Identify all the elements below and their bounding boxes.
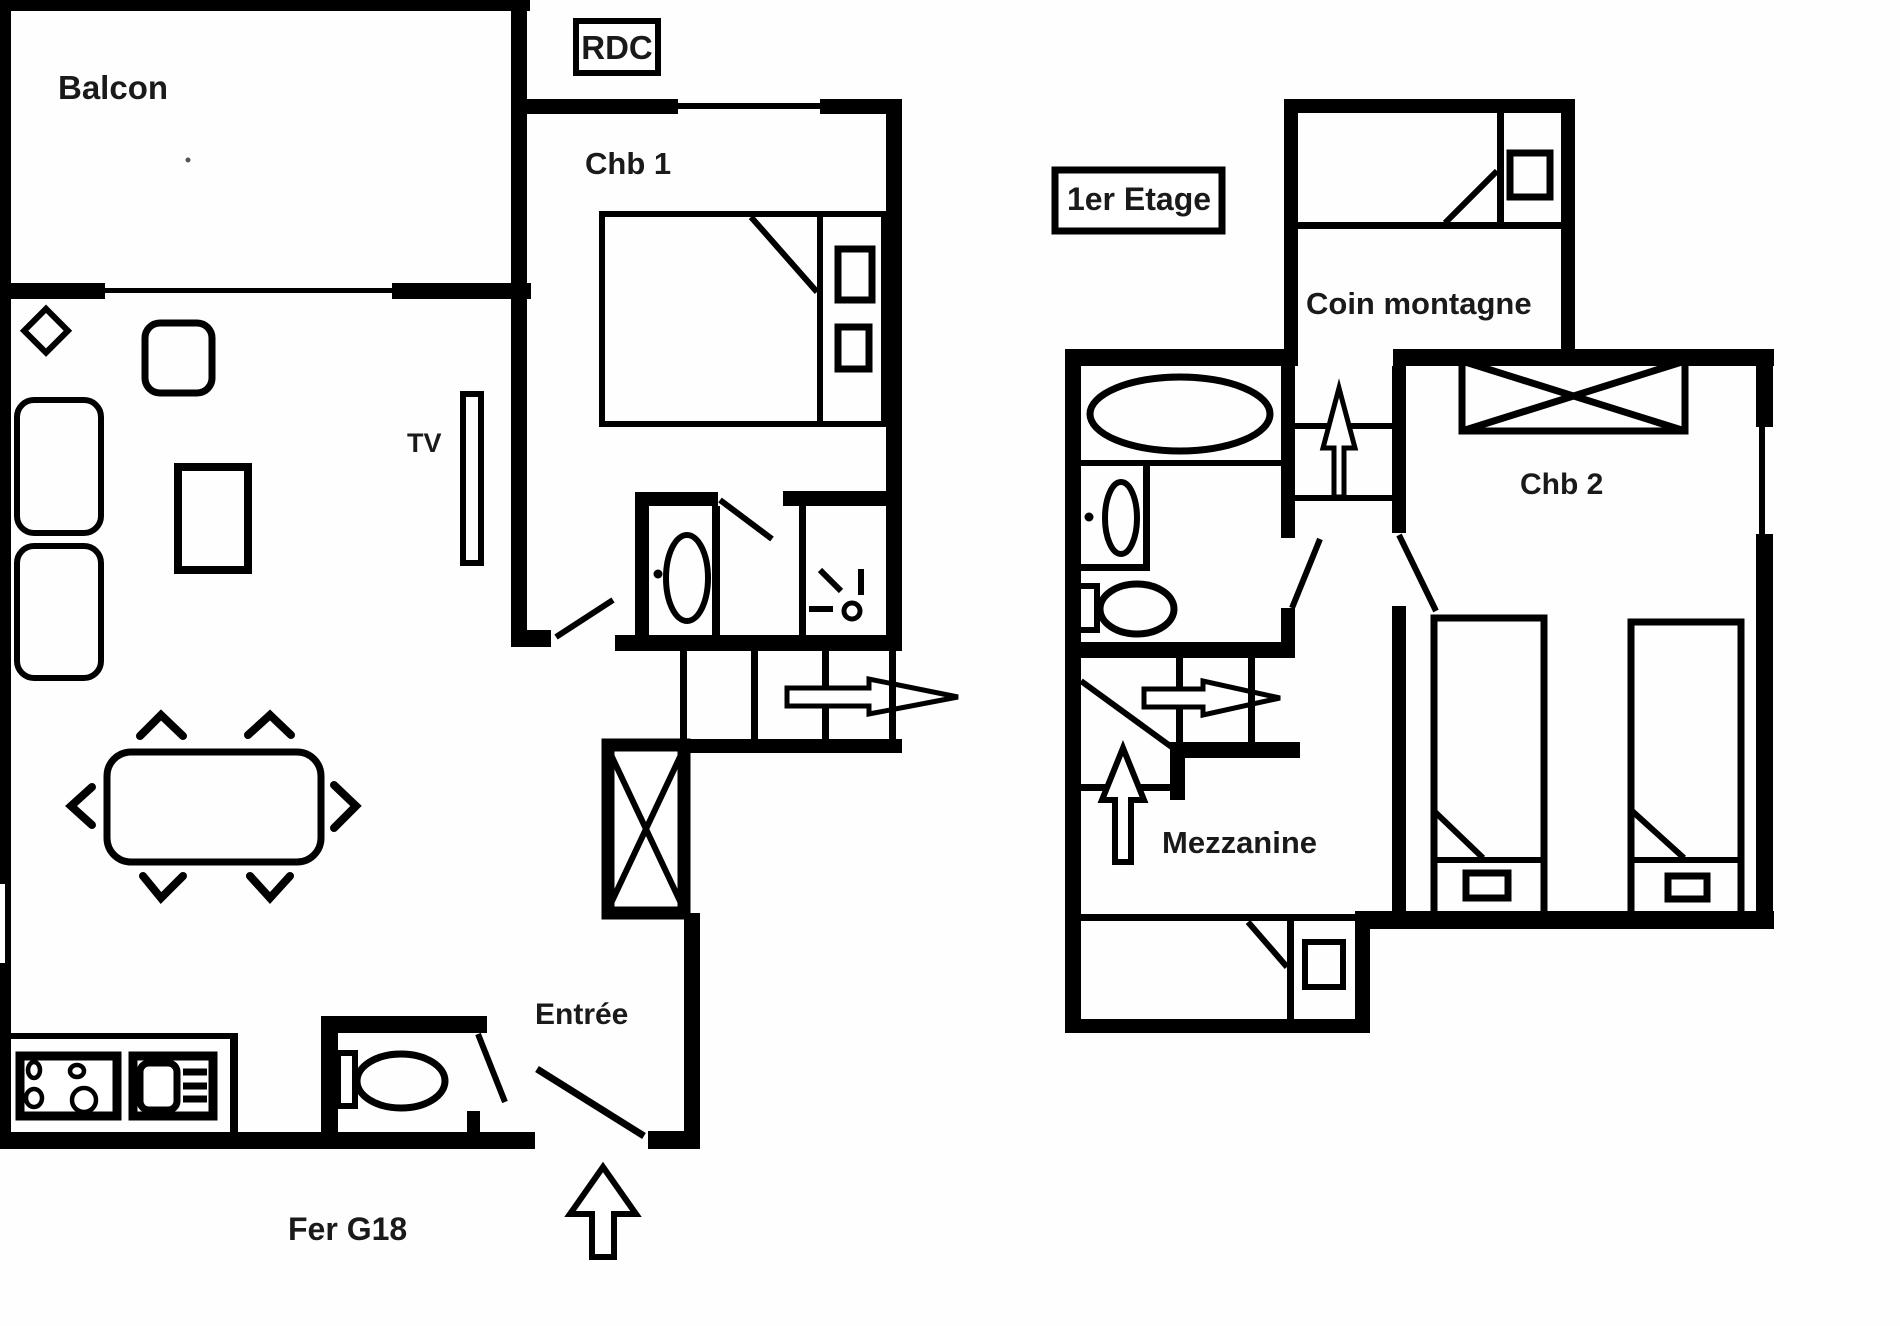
svg-text:Coin montagne: Coin montagne (1306, 286, 1532, 321)
svg-text:1er Etage: 1er Etage (1067, 181, 1211, 217)
svg-text:Entrée: Entrée (535, 998, 628, 1031)
svg-text:Chb 2: Chb 2 (1520, 468, 1603, 501)
svg-text:Mezzanine: Mezzanine (1162, 825, 1317, 860)
svg-text:TV: TV (407, 428, 442, 458)
svg-text:Chb 1: Chb 1 (585, 146, 671, 181)
svg-text:RDC: RDC (581, 29, 653, 66)
svg-text:Fer G18: Fer G18 (288, 1211, 407, 1247)
svg-text:Balcon: Balcon (58, 69, 168, 106)
